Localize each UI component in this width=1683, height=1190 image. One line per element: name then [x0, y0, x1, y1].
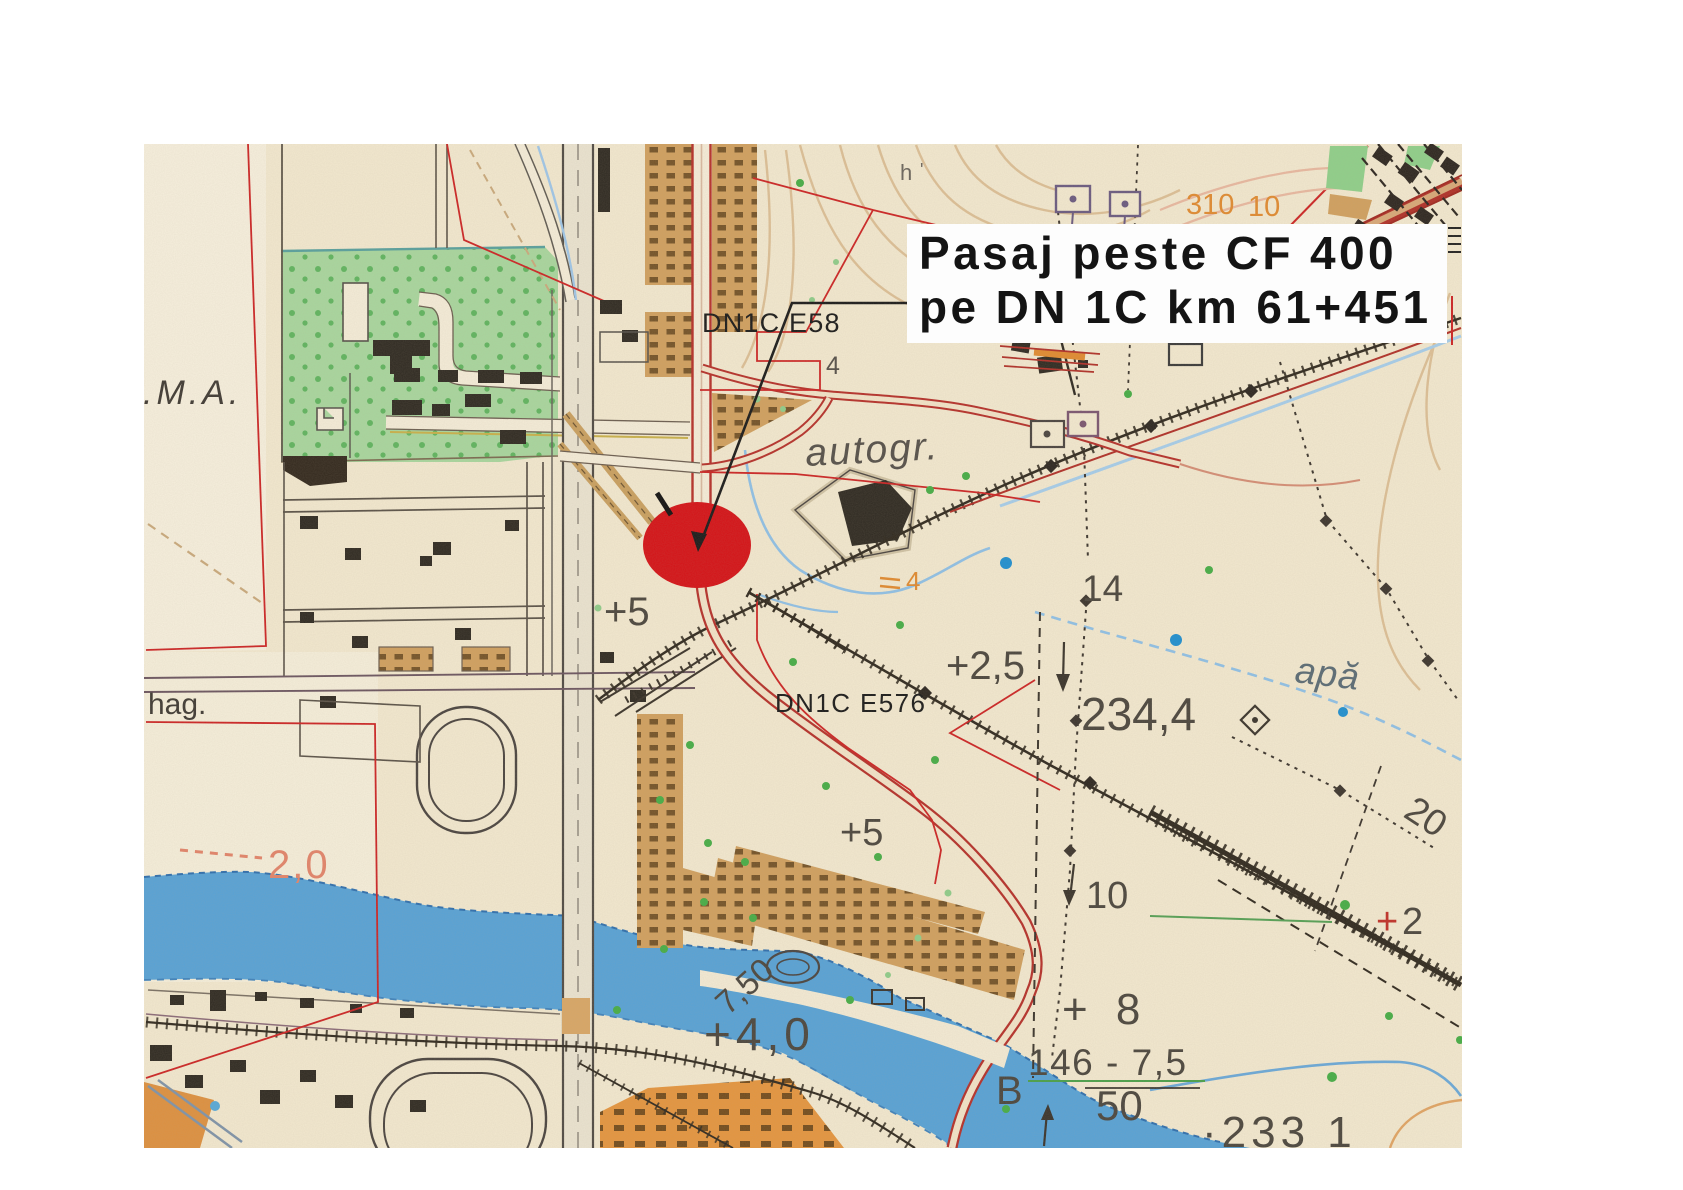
svg-text:Pasaj peste CF 400: Pasaj peste CF 400 — [919, 227, 1397, 279]
svg-text:pe DN 1C km 61+451: pe DN 1C km 61+451 — [919, 281, 1432, 333]
